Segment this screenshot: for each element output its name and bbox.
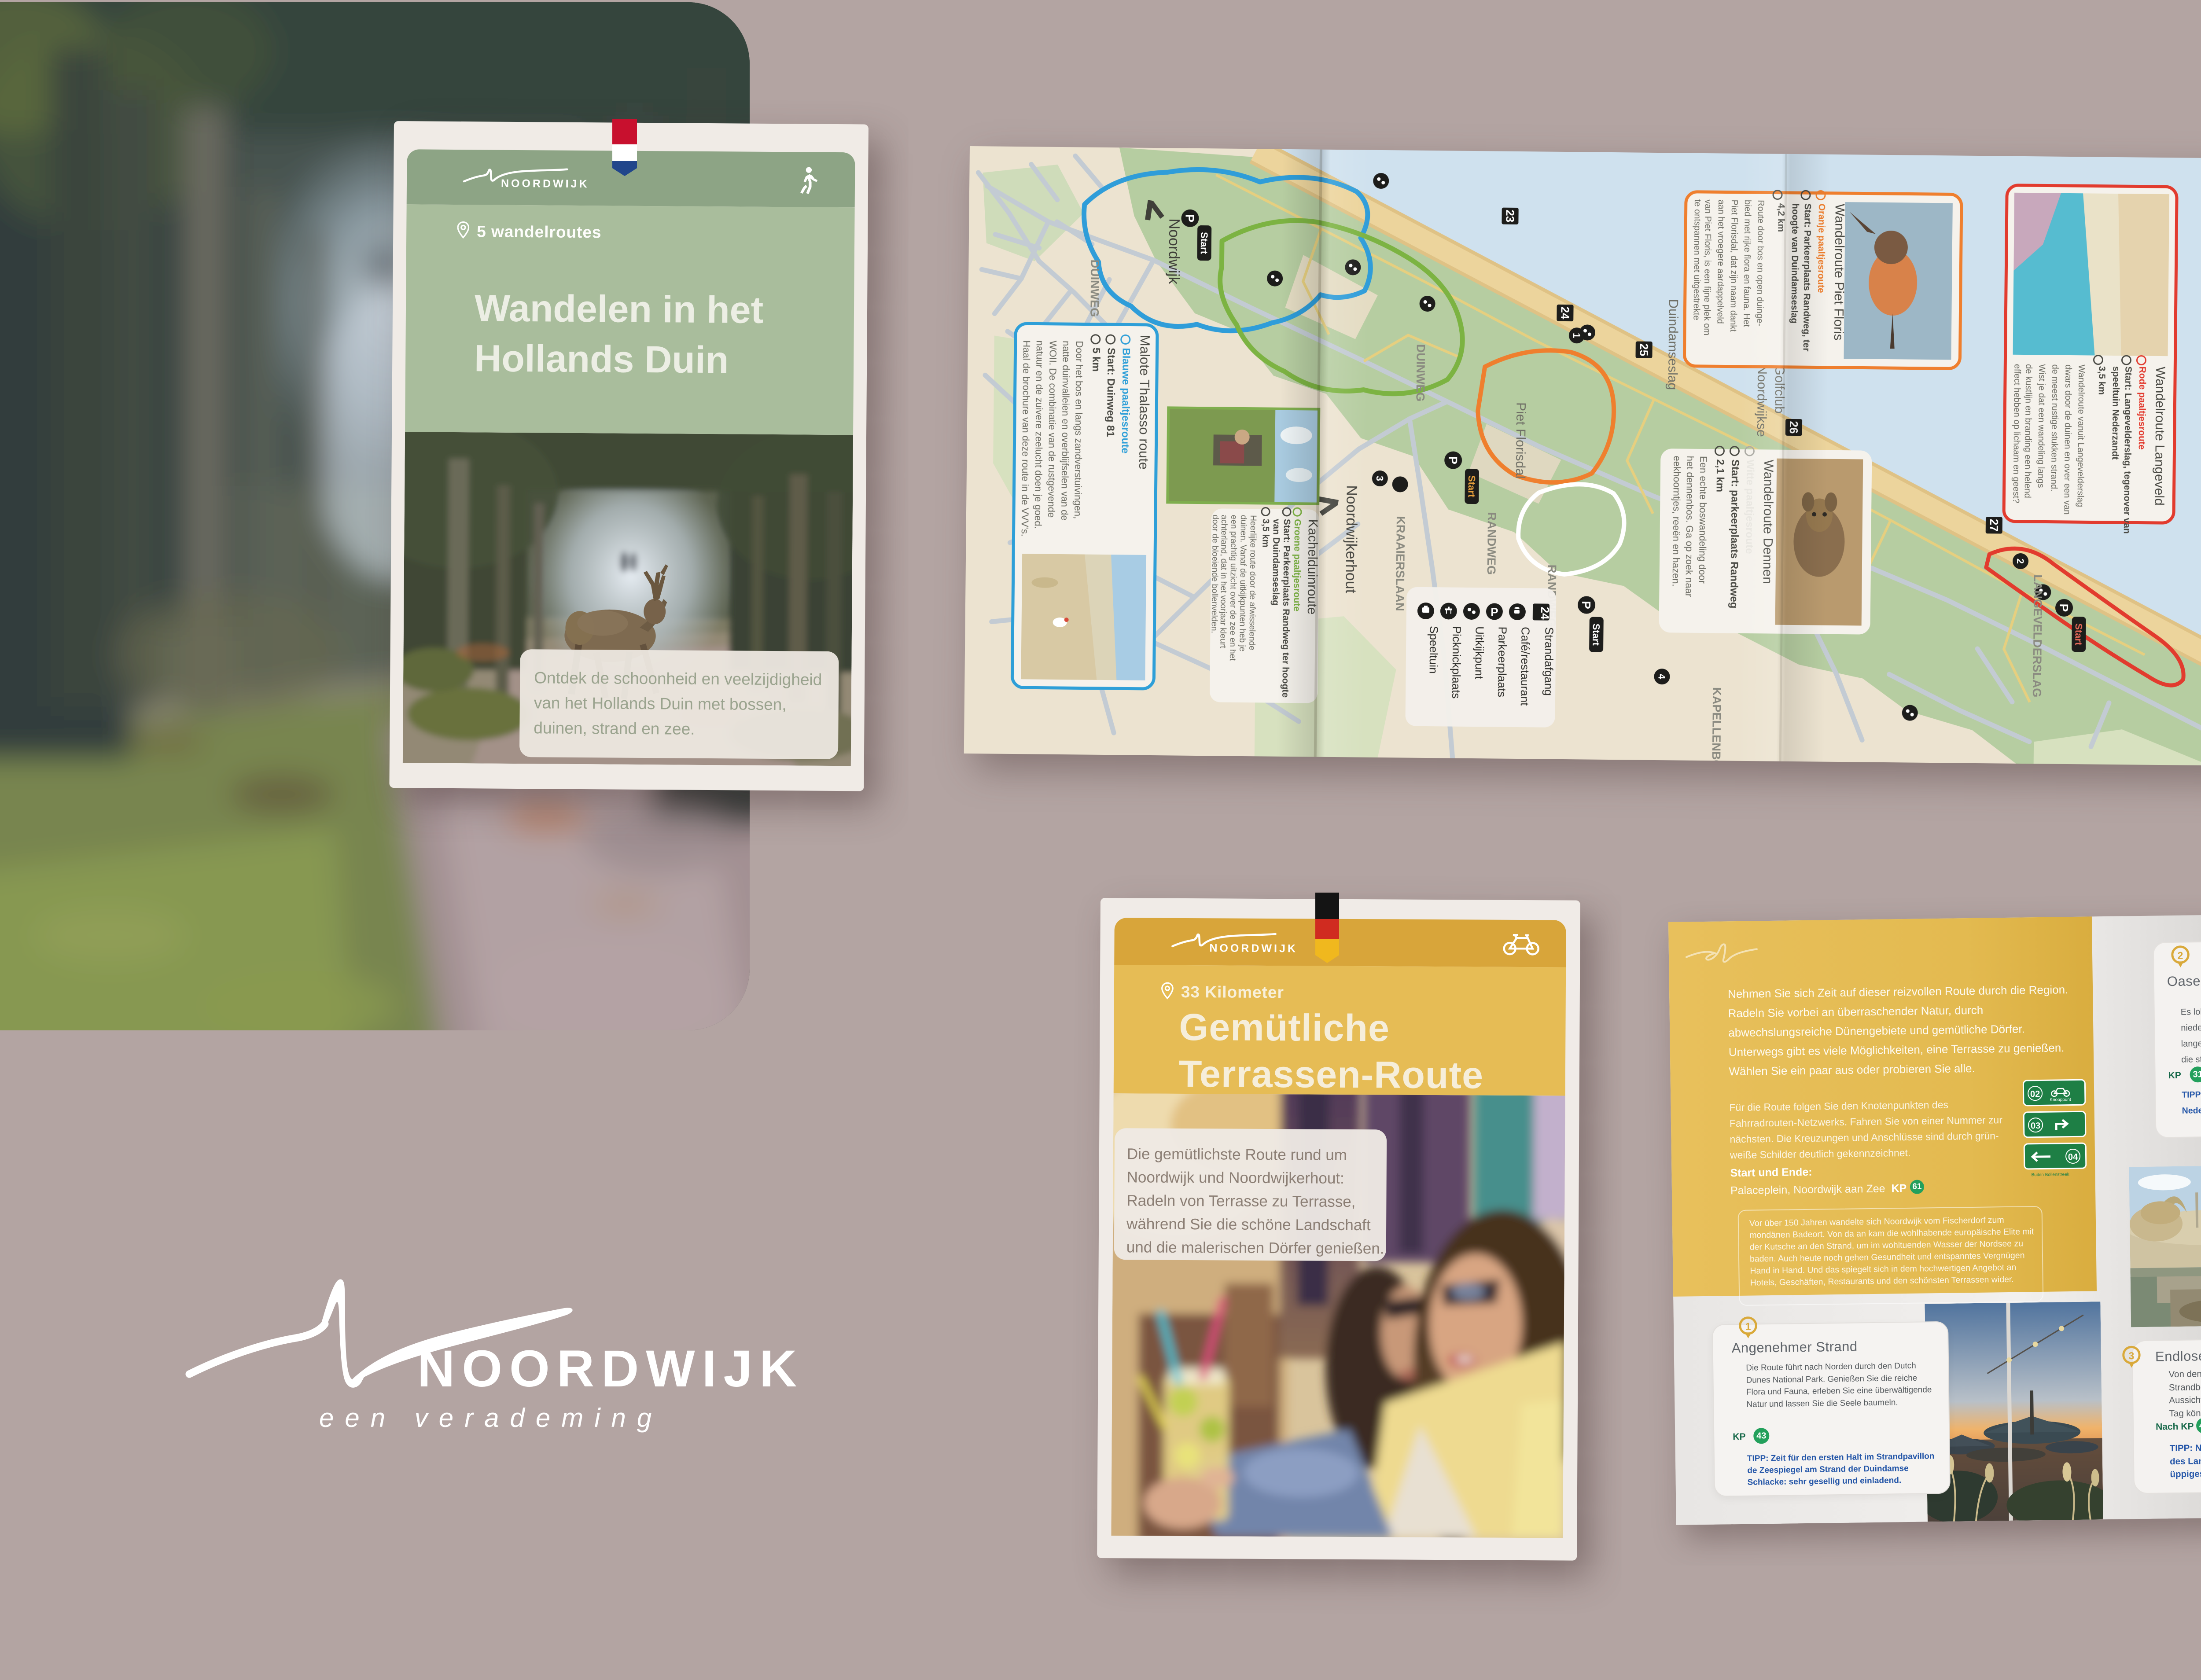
svg-text:Haal de brochure van deze rout: Haal de brochure van deze route in de VV…	[1019, 340, 1032, 537]
svg-text:WOII. De combinatie van de rus: WOII. De combinatie van de rustgevende	[1046, 341, 1059, 518]
svg-text:Parkeerplaats: Parkeerplaats	[1495, 627, 1509, 698]
svg-text:een prachtig uitzicht over de: een prachtig uitzicht over de zee en het	[1228, 515, 1238, 662]
svg-text:Picknickplaats: Picknickplaats	[1450, 626, 1464, 699]
svg-text:NOORDWIJK: NOORDWIJK	[501, 177, 589, 190]
svg-text:25: 25	[1637, 343, 1650, 356]
svg-text:Start: Start	[2073, 623, 2084, 646]
svg-text:24: 24	[1558, 306, 1572, 320]
svg-text:P: P	[2057, 603, 2071, 612]
svg-text:Duindamseslag: Duindamseslag	[1665, 299, 1681, 390]
svg-text:het dennenbos. Ga op zoek naar: het dennenbos. Ga op zoek naar	[1683, 456, 1696, 597]
svg-text:Start: Start	[1590, 624, 1601, 646]
svg-text:23: 23	[1503, 210, 1516, 222]
svg-text:duinen. Vanaf de uitkijkpunten: duinen. Vanaf de uitkijkpunten heb je	[1237, 515, 1248, 651]
svg-text:Wist je dat een wandeling lang: Wist je dat een wandeling langs	[2036, 364, 2047, 488]
svg-text:effect hebben op lichaam en ge: effect hebben op lichaam en geest?	[2011, 364, 2022, 504]
svg-text:1: 1	[1571, 333, 1582, 338]
svg-text:aan het vroegere aardappelveld: aan het vroegere aardappelveld	[1715, 199, 1726, 324]
svg-text:NOORDWIJK: NOORDWIJK	[417, 1340, 804, 1398]
svg-text:2: 2	[2015, 559, 2026, 564]
svg-text:P: P	[1183, 214, 1196, 222]
svg-text:Heerlijke route door de afwiss: Heerlijke route door de afwisselende	[1247, 515, 1258, 651]
svg-text:de kustlijn en branding een he: de kustlijn en branding een helend	[2022, 364, 2033, 498]
svg-text:3: 3	[2128, 1350, 2134, 1361]
svg-text:Wandelroute vanuit Langevelder: Wandelroute vanuit Langevelderslag	[2075, 364, 2086, 507]
svg-text:natte duinvalleien en overblij: natte duinvalleien en overblijfselen van…	[1059, 341, 1072, 521]
svg-text:2: 2	[2178, 950, 2183, 961]
svg-text:27: 27	[1988, 519, 2001, 532]
svg-text:4: 4	[1656, 674, 1667, 680]
svg-text:P: P	[1446, 456, 1460, 464]
svg-text:RANDWEG: RANDWEG	[1485, 512, 1498, 575]
svg-text:24: 24	[1538, 607, 1552, 620]
svg-text:Café/restaurant: Café/restaurant	[1518, 627, 1532, 706]
svg-text:Start: Duinweg 81: Start: Duinweg 81	[1104, 348, 1117, 437]
svg-text:3,5 km: 3,5 km	[1260, 518, 1271, 548]
svg-text:3: 3	[1374, 476, 1385, 481]
svg-text:5 km: 5 km	[1090, 348, 1102, 372]
svg-text:speeltuin Nederzandt: speeltuin Nederzandt	[2110, 366, 2121, 460]
svg-text:P: P	[1491, 605, 1498, 618]
svg-text:Noordwijk: Noordwijk	[1165, 218, 1182, 285]
svg-text:P: P	[1579, 601, 1593, 609]
svg-text:NOORDWIJK: NOORDWIJK	[1209, 942, 1298, 955]
svg-text:Start: Langevelderslag, tegeno: Start: Langevelderslag, tegenover van	[2122, 366, 2134, 534]
svg-text:LANGEVELDERSLAG: LANGEVELDERSLAG	[2030, 574, 2045, 697]
svg-text:Speeltuin: Speeltuin	[1427, 626, 1441, 674]
svg-text:de meest rustige stukken stran: de meest rustige stukken strand.	[2049, 364, 2060, 492]
svg-text:1: 1	[1745, 1320, 1751, 1332]
svg-text:een verademing: een verademing	[319, 1403, 663, 1433]
svg-text:Malote Thalasso route: Malote Thalasso route	[1136, 335, 1153, 470]
svg-text:Blauwe paaltjesroute: Blauwe paaltjesroute	[1119, 348, 1132, 453]
svg-text:Door het bos en langs zandvers: Door het bos en langs zandverstuivingen,	[1072, 341, 1085, 519]
svg-text:Een echte boswandeling door: Een echte boswandeling door	[1697, 456, 1709, 584]
svg-text:DUINWEG: DUINWEG	[1088, 260, 1101, 317]
svg-text:Start: Start	[1466, 475, 1477, 498]
svg-text:3,5 km: 3,5 km	[2097, 366, 2107, 395]
svg-text:door de bloeiende bollenvelden: door de bloeiende bollenvelden.	[1209, 515, 1220, 633]
svg-text:Strandafgang: Strandafgang	[1542, 627, 1556, 696]
svg-text:eekhoorntjes, reeën en hazen.: eekhoorntjes, reeën en hazen.	[1670, 456, 1682, 586]
svg-text:dwars door de duinen en over e: dwars door de duinen en over een van	[2062, 364, 2073, 515]
svg-text:Rode paaltjesroute: Rode paaltjesroute	[2137, 366, 2148, 449]
svg-text:KAPELLENBOSLAAN: KAPELLENBOSLAAN	[1709, 687, 1724, 765]
svg-text:Piet Florisdal: Piet Florisdal	[1513, 402, 1528, 479]
svg-text:Start: Start	[1199, 232, 1210, 254]
svg-text:natuur en de zuivere zeelucht: natuur en de zuivere zeelucht doen je go…	[1033, 340, 1045, 529]
svg-text:van Piet Floris, is een fijne: van Piet Floris, is een fijne plek om	[1702, 199, 1713, 335]
svg-text:Piet Florisdal, dat zijn naam: Piet Florisdal, dat zijn naam dankt	[1728, 200, 1739, 332]
svg-text:DUINWEG: DUINWEG	[1413, 344, 1427, 402]
svg-text:Wandelroute Langeveld: Wandelroute Langeveld	[2152, 367, 2168, 506]
svg-text:2,1 km: 2,1 km	[1714, 459, 1726, 492]
svg-text:KRAAIERSLAAN: KRAAIERSLAAN	[1393, 516, 1407, 611]
svg-text:te ontspannen met uitgestrekte: te ontspannen met uitgestrekte	[1691, 199, 1702, 320]
svg-text:Uitkijkpunt: Uitkijkpunt	[1472, 626, 1486, 680]
